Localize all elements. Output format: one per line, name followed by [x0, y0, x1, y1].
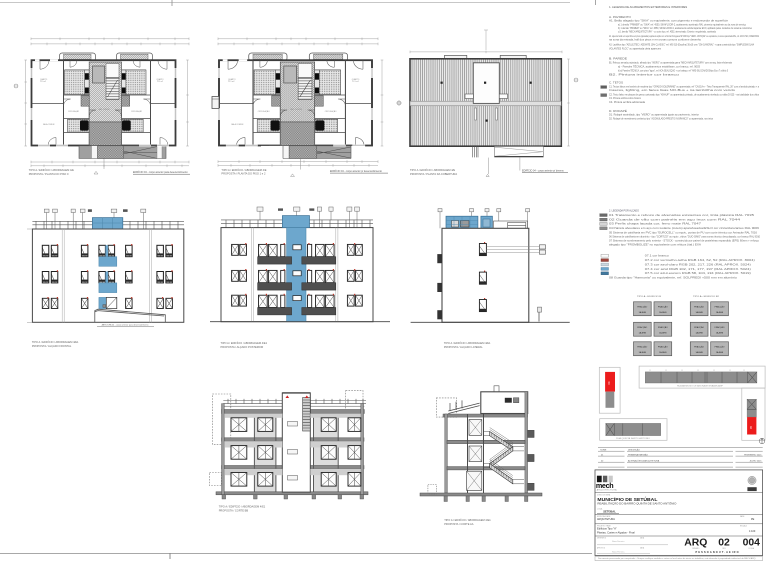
svg-text:TIPO A / EDIFÍCIO / ABORDAGEM: TIPO A / EDIFÍCIO / ABORDAGEM 4/E1 — [219, 505, 266, 509]
svg-text:07.5 cor azul-escuro RGB 58, 1: 07.5 cor azul-escuro RGB 58, 104, 134 (R… — [645, 272, 751, 275]
svg-text:B1. Reboco armado projectado,: B1. Reboco armado projectado, afinado ti… — [609, 61, 733, 64]
svg-text:LOCAL: LOCAL — [597, 508, 603, 511]
svg-text:2. LEGENDA POR ALÇADO: 2. LEGENDA POR ALÇADO — [609, 210, 639, 213]
svg-text:PROPOSTA / ALÇADO POSTERIOR: PROPOSTA / ALÇADO POSTERIOR — [221, 345, 264, 349]
svg-text:07.1 cor branco: 07.1 cor branco — [645, 255, 670, 258]
svg-text:EDIFÍCIO 04 - corpo anterior p: EDIFÍCIO 04 - corpo anterior p/ desenvol… — [330, 170, 382, 173]
svg-text:DONO DE OBRA: DONO DE OBRA — [597, 493, 611, 496]
svg-text:02: 02 — [718, 537, 730, 548]
svg-text:PE: PE — [751, 518, 755, 521]
svg-text:EDIFÍCIO 04 - corpo anterior p: EDIFÍCIO 04 - corpo anterior para desenv… — [133, 171, 188, 174]
svg-text:07.2 cor vermelho-telha RGB 16: 07.2 cor vermelho-telha RGB 164, 62, 52 … — [645, 259, 755, 262]
svg-text:07 Sistema de sombreamento pel: 07 Sistema de sombreamento pelo exterior… — [609, 239, 760, 242]
svg-text:PESSOANOUT.AEIRO: PESSOANOUT.AEIRO — [696, 551, 740, 554]
svg-text:Documento processado por compu: Documento processado por computador - Se… — [598, 557, 757, 560]
svg-text:TIPO A - EDIFÍCIO B: TIPO A - EDIFÍCIO B — [637, 295, 662, 298]
svg-text:ARQUITECTURA: ARQUITECTURA — [597, 488, 617, 491]
svg-text:b) a) Paredes TÉCNICA, com pis: b) a) Paredes TÉCNICA, com pisos "água",… — [618, 69, 729, 72]
svg-text:A1. Betão afagado tipo "SIKA": A1. Betão afagado tipo "SIKA" ou equival… — [609, 20, 729, 23]
svg-text:DESCRIÇÃO: DESCRIÇÃO — [628, 449, 640, 452]
svg-text:D2. Rodapé de revestimento cer: D2. Rodapé de revestimento cerâmico tipo… — [609, 118, 714, 121]
svg-text:na zona da entrada, hall dos p: na zona da entrada, hall dos pisos e em … — [609, 39, 702, 42]
svg-text:07.4 cor azul RGB 102, 171, 17: 07.4 cor azul RGB 102, 171, 177, 197 (RA… — [645, 268, 751, 271]
svg-text:RUA ANSELMO DE ANDRADE BRAAMCA: RUA ANSELMO DE ANDRADE BRAAMCAMP — [677, 385, 724, 388]
svg-text:ARQUITETURA: ARQUITETURA — [597, 518, 615, 521]
svg-text:PROPOSTA / PLANTA DO PISO 1 e: PROPOSTA / PLANTA DO PISO 1 e 2 — [221, 172, 266, 176]
svg-text:ABROCHA 04 - corpo anterior pa: ABROCHA 04 - corpo anterior para desenvo… — [102, 323, 150, 326]
svg-text:1A-BHB: 1A-BHB — [639, 311, 647, 314]
svg-text:TIPO A / EDIFÍCIO / ABORDAGEM: TIPO A / EDIFÍCIO / ABORDAGEM 4/E — [410, 168, 455, 172]
svg-text:a) - Paredes TÉCNICA, acabamen: a) - Paredes TÉCNICA, acabamentos estabi… — [618, 65, 701, 68]
svg-text:HALL COMUM: HALL COMUM — [98, 108, 110, 111]
svg-text:D. RODAPÉ: D. RODAPÉ — [609, 110, 628, 113]
svg-text:TIPO A / EDIFÍCIO / ABORDAGEM: TIPO A / EDIFÍCIO / ABORDAGEM 4/E1 — [32, 340, 79, 344]
svg-text:PROPOSTA / ALÇADO FRONTAL: PROPOSTA / ALÇADO FRONTAL — [32, 344, 72, 348]
svg-text:01 Tratamento e reboco de alve: 01 Tratamento e reboco de alvenarias exi… — [609, 214, 755, 217]
svg-text:TIPO A / EDIFÍCIO / ABORDAGEM: TIPO A / EDIFÍCIO / ABORDAGEM 4/E — [29, 168, 74, 172]
svg-text:PROPOSTA / PLANTA DA COBERTURA: PROPOSTA / PLANTA DA COBERTURA — [410, 172, 457, 176]
svg-text:A3. Ladrilhos tipo "AZULEJTEC: A3. Ladrilhos tipo "AZULEJTEC / AZENATE … — [609, 44, 754, 47]
svg-text:A. PAVIMENTO: A. PAVIMENTO — [609, 16, 631, 19]
svg-text:1. LEGENDA DE ACABAMENTOS EXTE: 1. LEGENDA DE ACABAMENTOS EXTERIORES E I… — [609, 6, 687, 9]
svg-text:07.3 cor azul-claro RGB 202, 2: 07.3 cor azul-claro RGB 202, 217, 226 (R… — [645, 263, 751, 266]
svg-text:C3. Pintura acrílica cobre bra: C3. Pintura acrílica cobre branco — [609, 97, 642, 100]
svg-text:PRIMEIRA EMISSÃO: PRIMEIRA EMISSÃO — [628, 453, 648, 456]
svg-text:D1. Rodapé assimilado, tipo "V: D1. Rodapé assimilado, tipo "VIERO" ou a… — [609, 114, 699, 117]
svg-text:RUA QUINTA SANTO ANTÓNIO: RUA QUINTA SANTO ANTÓNIO — [616, 437, 651, 440]
svg-text:1:100: 1:100 — [749, 530, 756, 533]
svg-text:004: 004 — [743, 537, 761, 548]
svg-text:b) 1 demão "PRIMER" ou "SIKA": b) 1 demão "PRIMER" ou "SIKA" ref. 4550,… — [618, 27, 753, 30]
svg-text:02 Guarda de vão com painéis e: 02 Guarda de vão com painéis em aço inox… — [609, 219, 742, 222]
svg-text:TIPO A / EDIFÍCIO / ABORDAGEM: TIPO A / EDIFÍCIO / ABORDAGEM 4/E1 — [221, 341, 268, 345]
svg-text:NOME: NOME — [600, 450, 607, 452]
svg-text:C4. Pintura acrílica adicionad: C4. Pintura acrílica adicionada — [609, 101, 646, 104]
svg-text:SALA COMUM: SALA COMUM — [43, 123, 55, 126]
svg-text:Nuno Ferreira: Nuno Ferreira — [612, 541, 625, 543]
svg-text:CIRCULAÇÃO: CIRCULAÇÃO — [68, 110, 80, 113]
svg-text:PROPOSTA / PLANTA DO PISO 0: PROPOSTA / PLANTA DO PISO 0 — [29, 172, 69, 176]
svg-text:12.5 m2: 12.5 m2 — [40, 81, 46, 83]
svg-text:Cascos, lighting, em faces lis: Cascos, lighting, em faces lisas NO-Bus … — [609, 89, 736, 92]
svg-text:JULHO 2021: JULHO 2021 — [749, 460, 762, 462]
svg-text:MUNICÍPIO DE SETÚBAL: MUNICÍPIO DE SETÚBAL — [597, 495, 657, 502]
svg-text:TIPO A / EDIFÍCIO / ABORDAGEM: TIPO A / EDIFÍCIO / ABORDAGEM 4/E1 — [444, 518, 491, 522]
svg-text:EDIFÍCIO 04 - corpo anterior p: EDIFÍCIO 04 - corpo anterior p/ desenv. — [522, 169, 564, 172]
svg-text:C2. Tecto falso em placas de g: C2. Tecto falso em placas de gesso carto… — [609, 94, 760, 97]
svg-text:06 Sistema de caixilharia em a: 06 Sistema de caixilharia em alumínio - … — [609, 236, 761, 239]
svg-text:B. PAREDE: B. PAREDE — [609, 57, 628, 60]
svg-text:ALTERAÇÕES À ARQUITETURA: ALTERAÇÕES À ARQUITETURA — [628, 459, 660, 462]
svg-text:REABILITAÇÃO DO BAIRRO QUINTA: REABILITAÇÃO DO BAIRRO QUINTA DE SANTO A… — [597, 503, 676, 506]
svg-text:PROPOSTA / CORTE AA: PROPOSTA / CORTE AA — [444, 522, 474, 526]
svg-text:VOLANTES FLOC" ou aparentada c: VOLANTES FLOC" ou aparentada cheia apare… — [609, 47, 661, 50]
svg-text:C. TETOS: C. TETOS — [609, 83, 624, 85]
svg-text:CIRCULAÇÃO: CIRCULAÇÃO — [131, 110, 143, 113]
svg-text:FRACÇÃO: FRACÇÃO — [637, 305, 647, 308]
svg-text:ESCALA: ESCALA — [740, 524, 748, 527]
svg-text:PROPOSTA / ALÇADO LATERAL: PROPOSTA / ALÇADO LATERAL — [444, 345, 483, 349]
svg-text:ARQ: ARQ — [684, 537, 707, 548]
svg-text:TIPO A - EDIFÍCIO B2: TIPO A - EDIFÍCIO B2 — [693, 295, 720, 298]
svg-text:12.5 m2: 12.5 m2 — [157, 81, 163, 83]
svg-text:08 Guarda tipo "Harmonia" ou e: 08 Guarda tipo "Harmonia" ou equivalente… — [609, 277, 738, 280]
svg-text:TIPO A / EDIFÍCIO / ABORDAGEM: TIPO A / EDIFÍCIO / ABORDAGEM 4/E1 — [444, 341, 491, 345]
svg-text:C1. Tectos falsos em lambris d: C1. Tectos falsos em lambris de madeira … — [609, 86, 760, 89]
svg-text:alegado tipo "FROMBOLIZE" no e: alegado tipo "FROMBOLIZE" no equivalente… — [609, 243, 702, 246]
svg-text:Plantas, Cortes e Alçados - Fi: Plantas, Cortes e Alçados - Final — [597, 531, 635, 535]
svg-text:TIPO A / EDIFÍCIO / ABORDAGEM: TIPO A / EDIFÍCIO / ABORDAGEM 4/E — [221, 168, 266, 172]
svg-text:05 Sistema de caixilharia em P: 05 Sistema de caixilharia em PVC tipo "E… — [609, 232, 758, 235]
svg-text:Edifícios Tipo "A": Edifícios Tipo "A" — [597, 527, 617, 531]
svg-text:PROPOSTA / CORTE BB: PROPOSTA / CORTE BB — [219, 508, 249, 512]
svg-text:04 Painéis alveolares em aço c: 04 Painéis alveolares em aço com isolant… — [609, 227, 760, 230]
svg-text:FEVEREIRO 2021: FEVEREIRO 2021 — [744, 454, 762, 456]
svg-text:A2. Lajes de betão em superfíc: A2. Lajes de betão em superfícies em pis… — [609, 35, 759, 38]
svg-text:DESENHOU: DESENHOU — [597, 538, 607, 540]
svg-text:a) 1 demão "PRIMER" ou "SIKA": a) 1 demão "PRIMER" ou "SIKA" ref. 4550,… — [618, 23, 747, 26]
svg-text:c) 1 demão "MECH ARQUITECTURA": c) 1 demão "MECH ARQUITECTURA" - ou outr… — [618, 31, 717, 34]
svg-text:03 Perfis chapa lacada cor, fe: 03 Perfis chapa lacada cor, ferro mate R… — [609, 223, 702, 226]
svg-text:B2. Pintura interior cor branc: B2. Pintura interior cor branco — [609, 74, 681, 77]
